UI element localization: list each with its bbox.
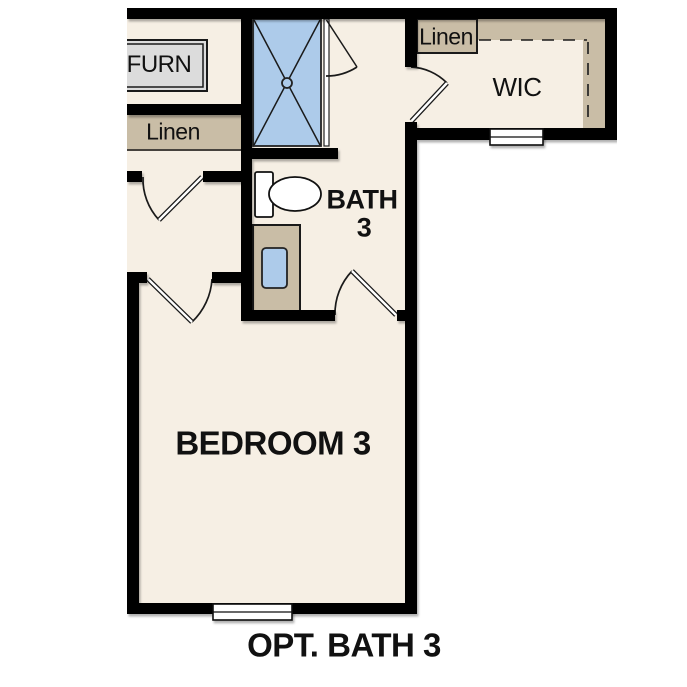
wall-bath-bottom bbox=[252, 310, 335, 321]
wall-bath-door-stub bbox=[397, 310, 405, 321]
floor-plan-drawing bbox=[0, 0, 687, 687]
sink bbox=[262, 248, 287, 288]
label-furnace: FURN bbox=[127, 53, 192, 77]
wall-wic-right bbox=[605, 8, 617, 140]
label-bedroom: BEDROOM 3 bbox=[175, 427, 370, 460]
label-wic: WIC bbox=[492, 74, 541, 100]
wall-furn-bottom bbox=[127, 104, 252, 115]
label-bath-line1: BATH bbox=[327, 187, 398, 214]
wall-right-upper bbox=[405, 19, 417, 67]
wall-bedroom-door-stub-right bbox=[212, 272, 241, 283]
wall-top bbox=[127, 8, 617, 19]
window-wic bbox=[490, 129, 543, 145]
wall-shower-bottom bbox=[241, 148, 338, 159]
shower-drain bbox=[282, 78, 292, 88]
wall-hall-bath bbox=[241, 8, 252, 321]
shower-glass-panel bbox=[324, 19, 329, 146]
label-linen-hall: Linen bbox=[146, 121, 200, 144]
window-bedroom bbox=[213, 604, 292, 620]
wall-right-main bbox=[405, 122, 417, 614]
toilet-bowl bbox=[269, 177, 321, 211]
label-caption: OPT. BATH 3 bbox=[247, 629, 441, 662]
wall-hall-door-stub-right bbox=[203, 171, 241, 182]
label-bath-line2: 3 bbox=[357, 215, 372, 242]
wall-hall-door-stub-left bbox=[127, 171, 142, 182]
wall-bedroom-left bbox=[127, 272, 139, 614]
floor-plan: FURN Linen Linen WIC BATH 3 BEDROOM 3 OP… bbox=[0, 0, 687, 687]
label-linen-wic: Linen bbox=[419, 26, 473, 49]
wic-shelf-right bbox=[583, 19, 605, 128]
